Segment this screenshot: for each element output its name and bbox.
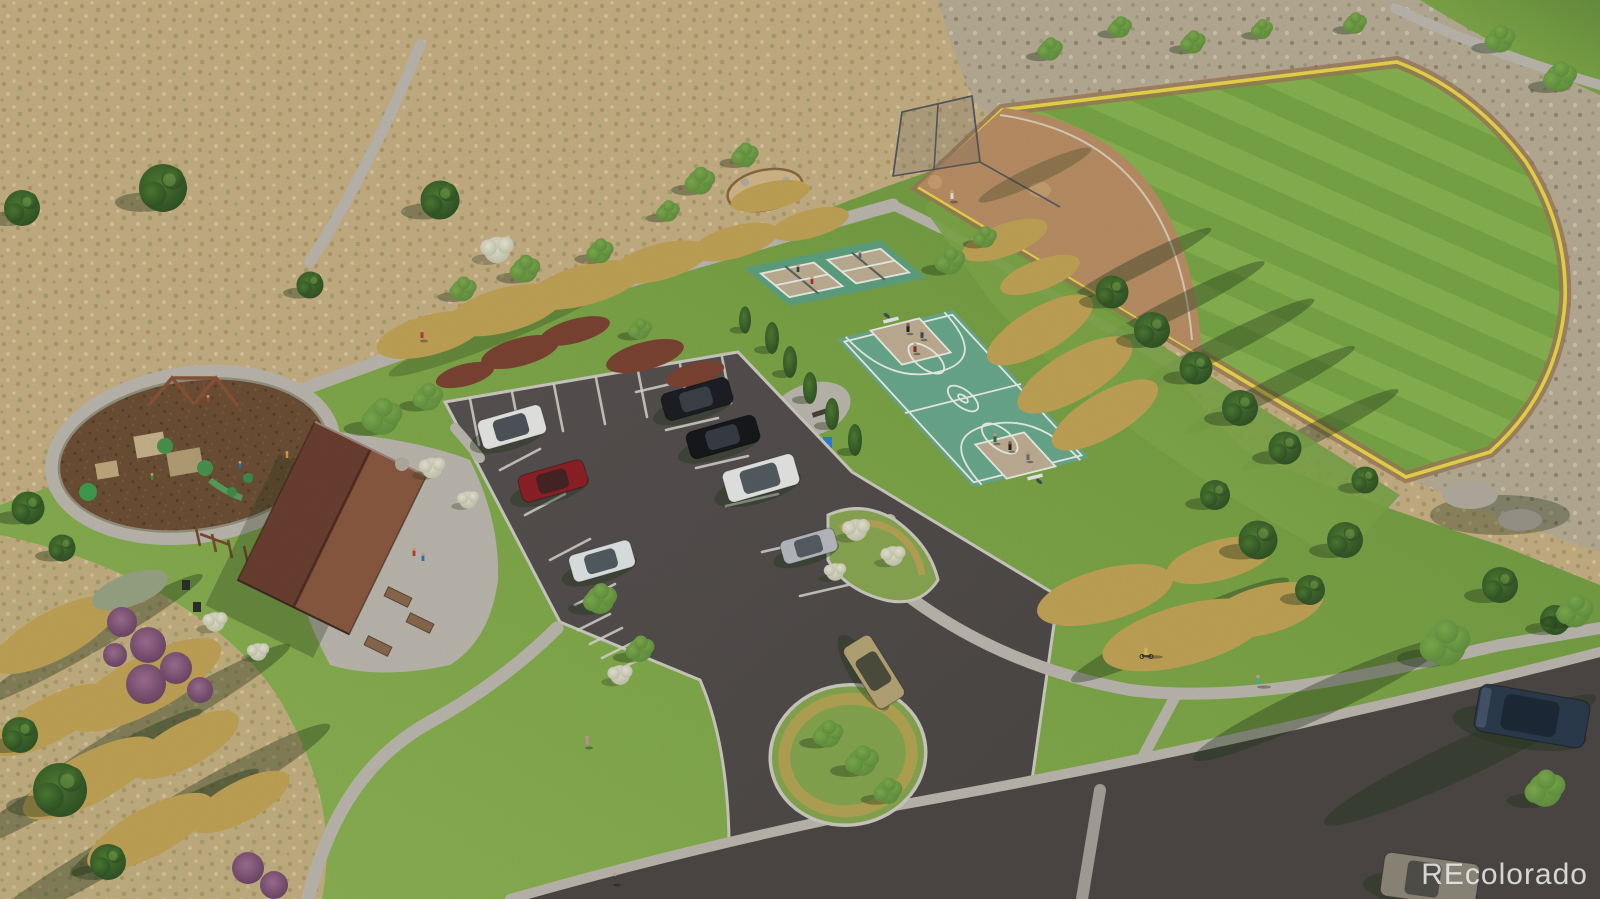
watermark: REcolorado [1421,858,1588,891]
scene: REcolorado [0,0,1600,899]
photo-grain [0,0,1600,899]
park-rendering: REcolorado [0,0,1600,899]
